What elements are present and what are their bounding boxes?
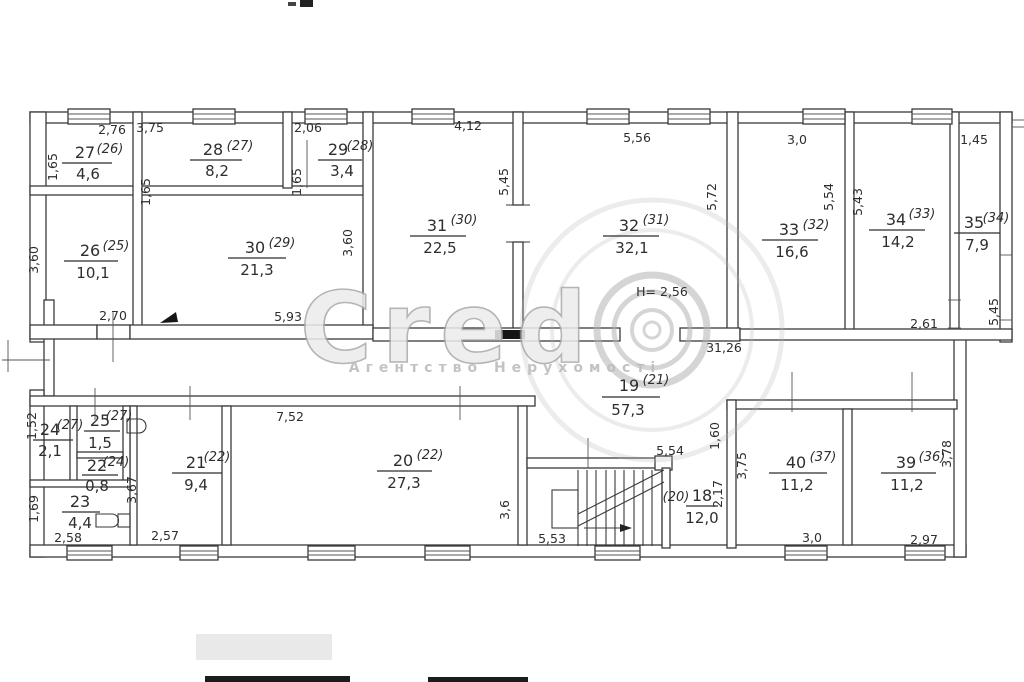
room-19-area: 57,3 [611,401,644,419]
room-35-old-number: (34) [983,211,1010,226]
room-30-old-number: (29) [269,236,296,251]
stairs-direction-arrow [620,524,632,532]
room-21-old-number: (22) [204,450,231,465]
dim-mid-29: 1,65 [289,168,304,196]
dim-top-29: 2,06 [294,120,322,135]
dim-left-34: 5,43 [850,188,865,216]
room-27-old-number: (26) [97,142,124,157]
dim-left-23: 1,69 [26,495,41,523]
dim-top-20: 7,52 [276,409,304,424]
dim-corridor-total: 31,26 [706,340,742,355]
room-22-old-number: (24) [103,455,130,470]
dim-top-27: 2,76 [98,122,126,137]
room-32-old-number: (31) [643,213,670,228]
dim-right-18: 2,17 [710,480,725,508]
dim-left-40: 3,75 [734,452,749,480]
room-26-area: 10,1 [76,264,109,282]
room-20-number: 20 [393,451,413,470]
dim-left-24: 1,52 [24,412,39,440]
dim-left-27: 1,65 [45,153,60,181]
dim-bottom-30: 5,93 [274,309,302,324]
dim-bottom-26: 2,70 [99,308,127,323]
dim-left-21: 3,67 [124,476,139,504]
room-28-area: 8,2 [205,162,229,180]
room-25-area: 1,5 [88,434,112,452]
room-18-area: 12,0 [685,509,718,527]
room-31-old-number: (30) [451,213,478,228]
room-34-area: 14,2 [881,233,914,251]
room-39-number: 39 [896,453,916,472]
room-40-old-number: (37) [810,450,837,465]
dim-left-33: 5,72 [704,183,719,211]
dim-bottom-34: 2,61 [910,316,938,331]
room-29-number: 29 [328,140,348,159]
dim-right-20: 3,6 [497,500,512,520]
door-jamb [118,514,130,527]
room-20-old-number: (22) [417,448,444,463]
room-32-number: 32 [619,216,639,235]
dim-left-26: 3,60 [26,246,41,274]
room-34-number: 34 [886,210,906,229]
room-40-area: 11,2 [780,476,813,494]
room-39-area: 11,2 [890,476,923,494]
dim-right-30: 3,60 [340,229,355,257]
ceiling-height-note: Н= 2,56 [636,284,688,299]
room-28-number: 28 [203,140,223,159]
dim-bottom-21: 2,57 [151,528,179,543]
dim-top-31: 4,12 [454,118,482,133]
room-26-number: 26 [80,241,100,260]
stairs [552,470,664,546]
floor-plan-scan: Cred Агентство Нерухомості 27 (26) 4,6 2… [0,0,1024,682]
room-30-number: 30 [245,238,265,257]
room-40-number: 40 [786,453,806,472]
room-23-number: 23 [70,492,90,511]
door-swing-arrow [160,312,178,323]
room-27-number: 27 [75,143,95,162]
dim-right-35: 5,45 [986,298,1001,326]
dim-wall-31-32: 5,45 [496,168,511,196]
dim-right-corridor: 1,60 [707,422,722,450]
room-25-old-number: (27) [106,409,133,424]
room-19-old-number: (21) [643,373,670,388]
room-33-number: 33 [779,220,799,239]
dim-top-stairs: 5,54 [656,443,684,458]
dim-top-28: 3,75 [136,120,164,135]
room-35-area: 7,9 [965,236,989,254]
room-24-old-number: (27) [57,418,84,433]
room-31-area: 22,5 [423,239,456,257]
room-33-old-number: (32) [803,218,830,233]
room-21-area: 9,4 [184,476,208,494]
dim-mid-28: 1,65 [138,178,153,206]
dim-top-32: 5,56 [623,130,651,145]
room-18-old-number: (20) [663,490,690,505]
room-31-number: 31 [427,216,447,235]
dim-bottom-23: 2,58 [54,530,82,545]
dim-top-35: 1,45 [960,132,988,147]
room-35-number: 35 [964,213,984,232]
dim-right-39: 3,78 [939,440,954,468]
room-29-old-number: (28) [347,139,374,154]
room-28-old-number: (27) [227,139,254,154]
dim-bottom-stairs: 5,53 [538,531,566,546]
room-29-area: 3,4 [330,162,354,180]
dim-bottom-40: 3,0 [802,530,822,545]
door-symbol [96,514,119,527]
watermark-subtitle: Агентство Нерухомості [349,360,661,376]
room-20-area: 27,3 [387,474,420,492]
room-27-area: 4,6 [76,165,100,183]
room-24-area: 2,1 [38,442,62,460]
room-32-area: 32,1 [615,239,648,257]
room-26-old-number: (25) [103,239,130,254]
dim-top-33: 3,0 [787,132,807,147]
floor-plan-svg: Cred Агентство Нерухомості 27 (26) 4,6 2… [0,0,1024,682]
room-19-number: 19 [619,376,639,395]
room-33-area: 16,6 [775,243,808,261]
dim-right-33: 5,54 [821,183,836,211]
dim-bottom-39: 2,97 [910,532,938,547]
room-30-area: 21,3 [240,261,273,279]
room-34-old-number: (33) [909,207,936,222]
